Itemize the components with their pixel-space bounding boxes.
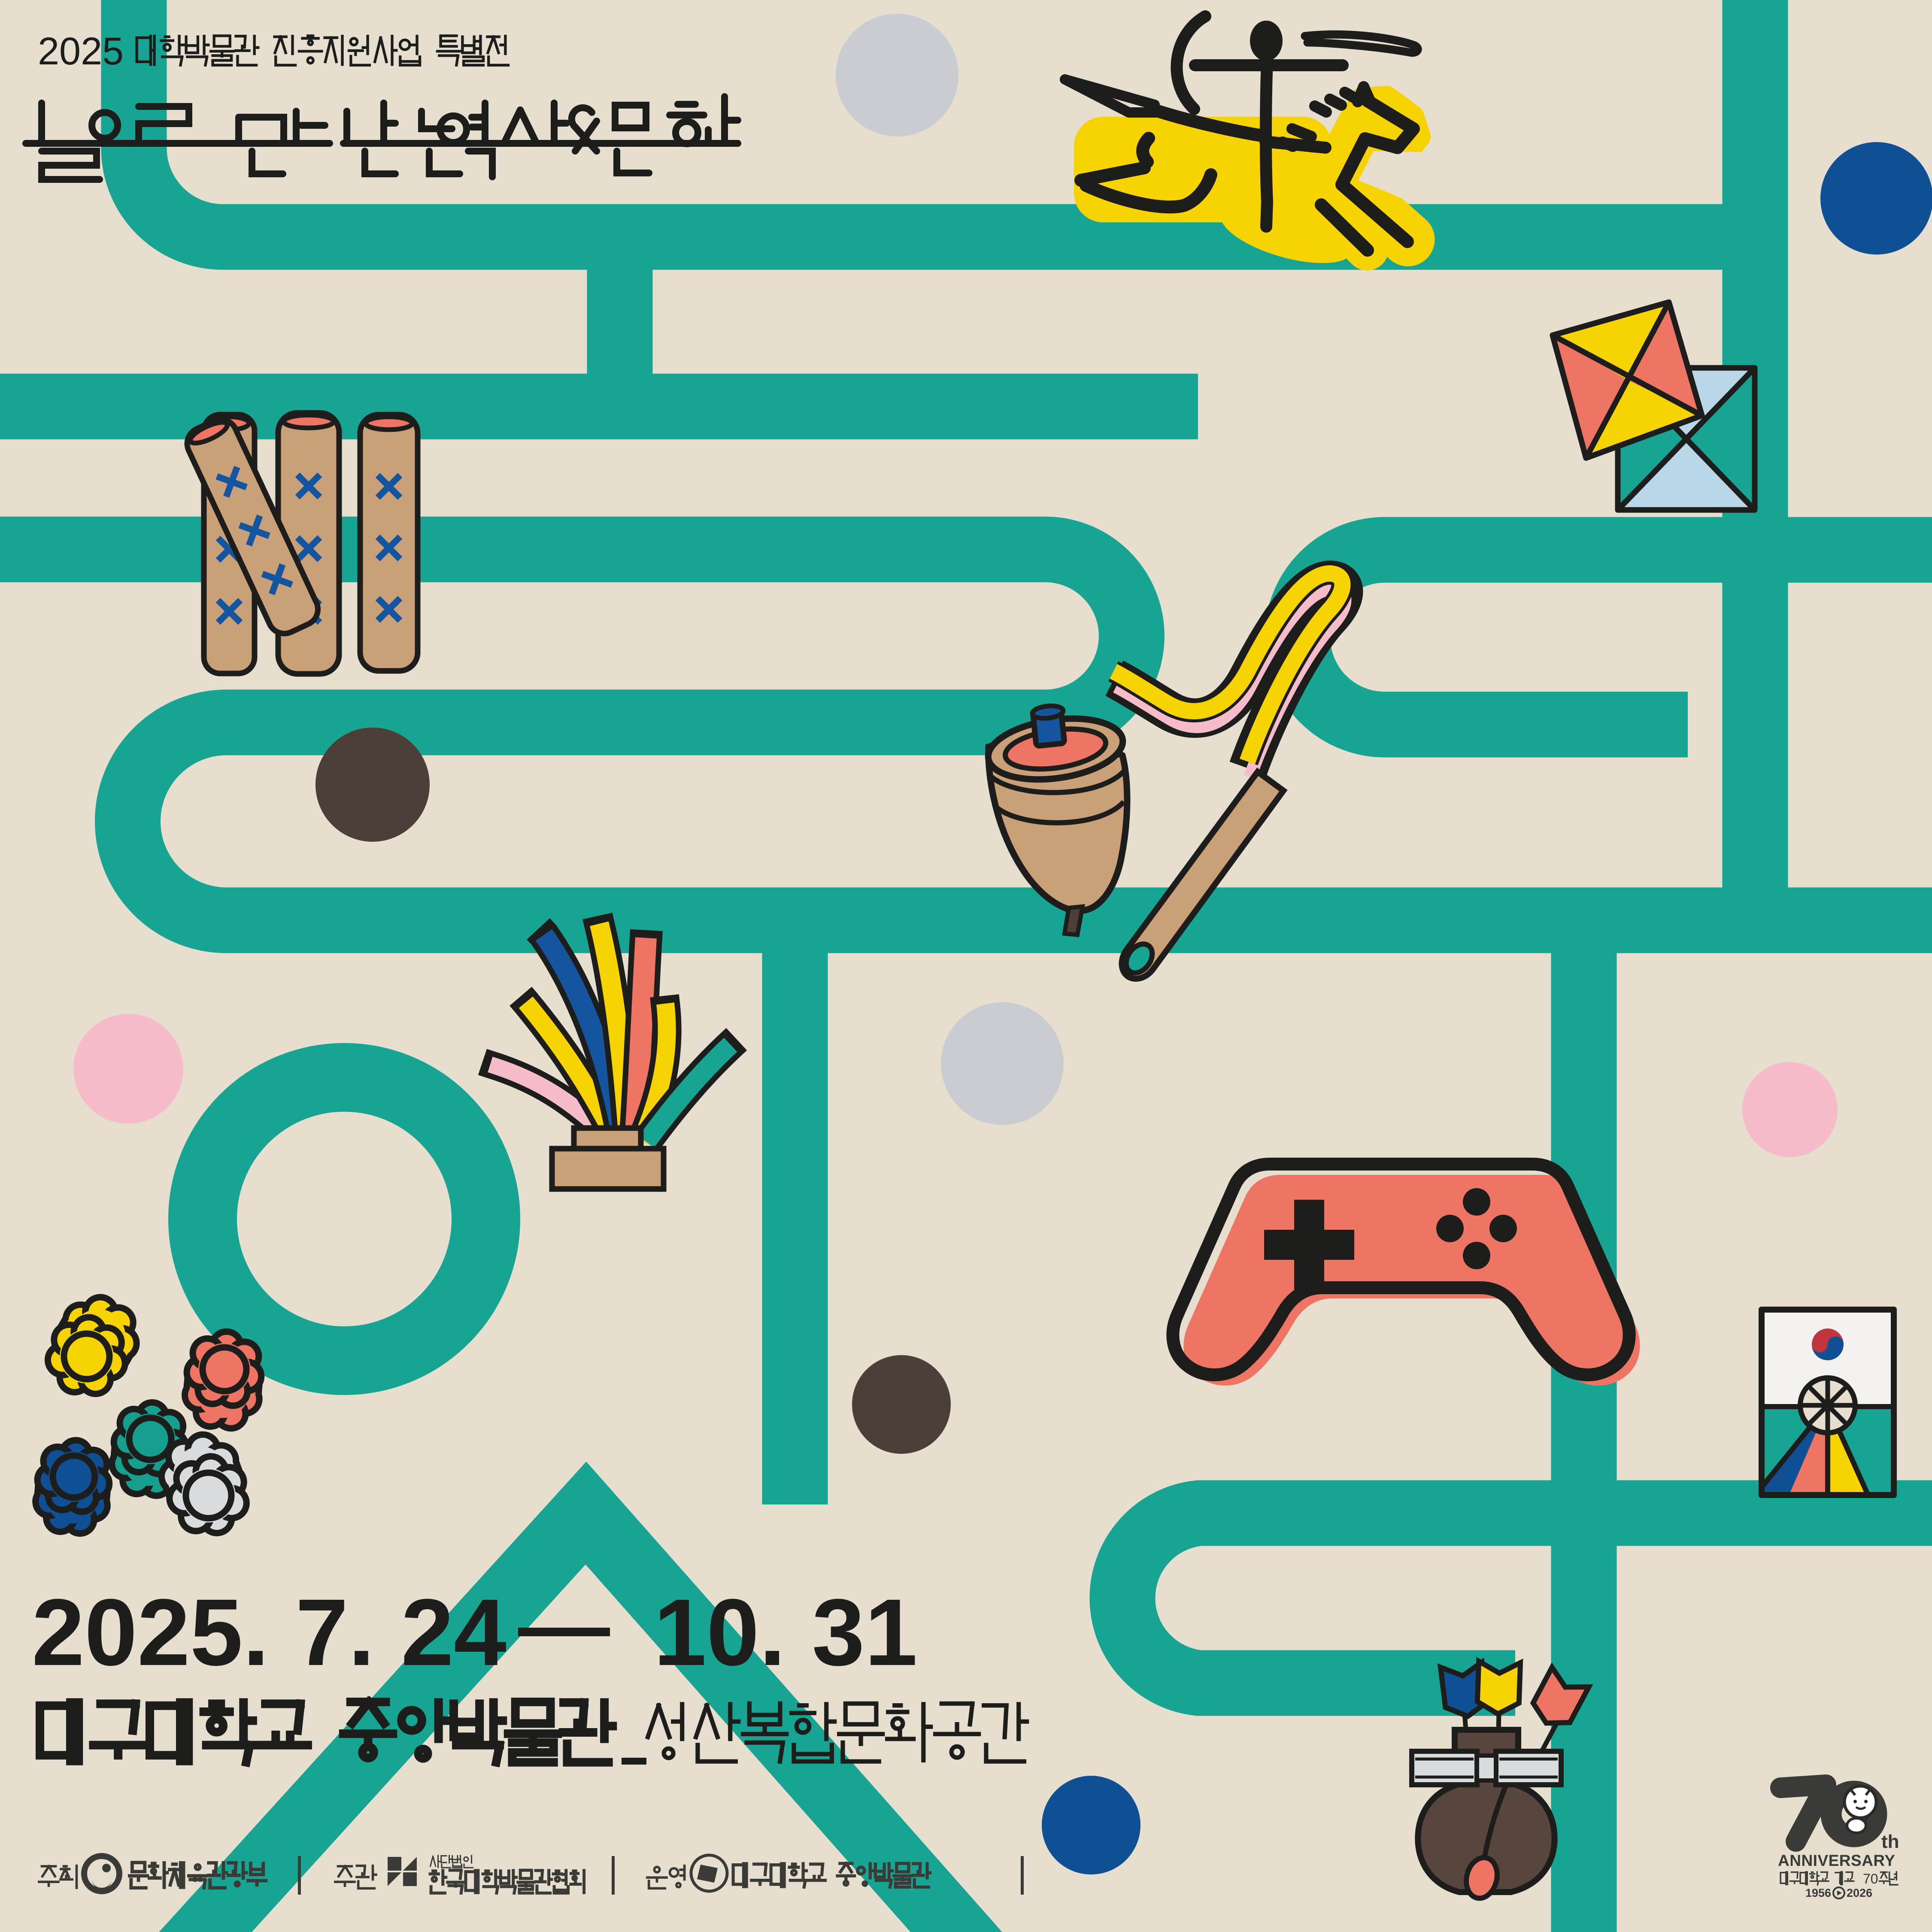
svg-text:2026: 2026 — [1847, 1887, 1872, 1899]
svg-text:ANNIVERSARY: ANNIVERSARY — [1778, 1852, 1895, 1869]
svg-text:2025. 7. 24: 2025. 7. 24 — [32, 1579, 507, 1685]
svg-text:2025: 2025 — [38, 30, 124, 73]
svg-text:70: 70 — [1863, 1871, 1878, 1887]
svg-text:1956: 1956 — [1805, 1887, 1831, 1899]
svg-text:th: th — [1881, 1831, 1899, 1852]
svg-text:10. 31: 10. 31 — [654, 1579, 917, 1685]
